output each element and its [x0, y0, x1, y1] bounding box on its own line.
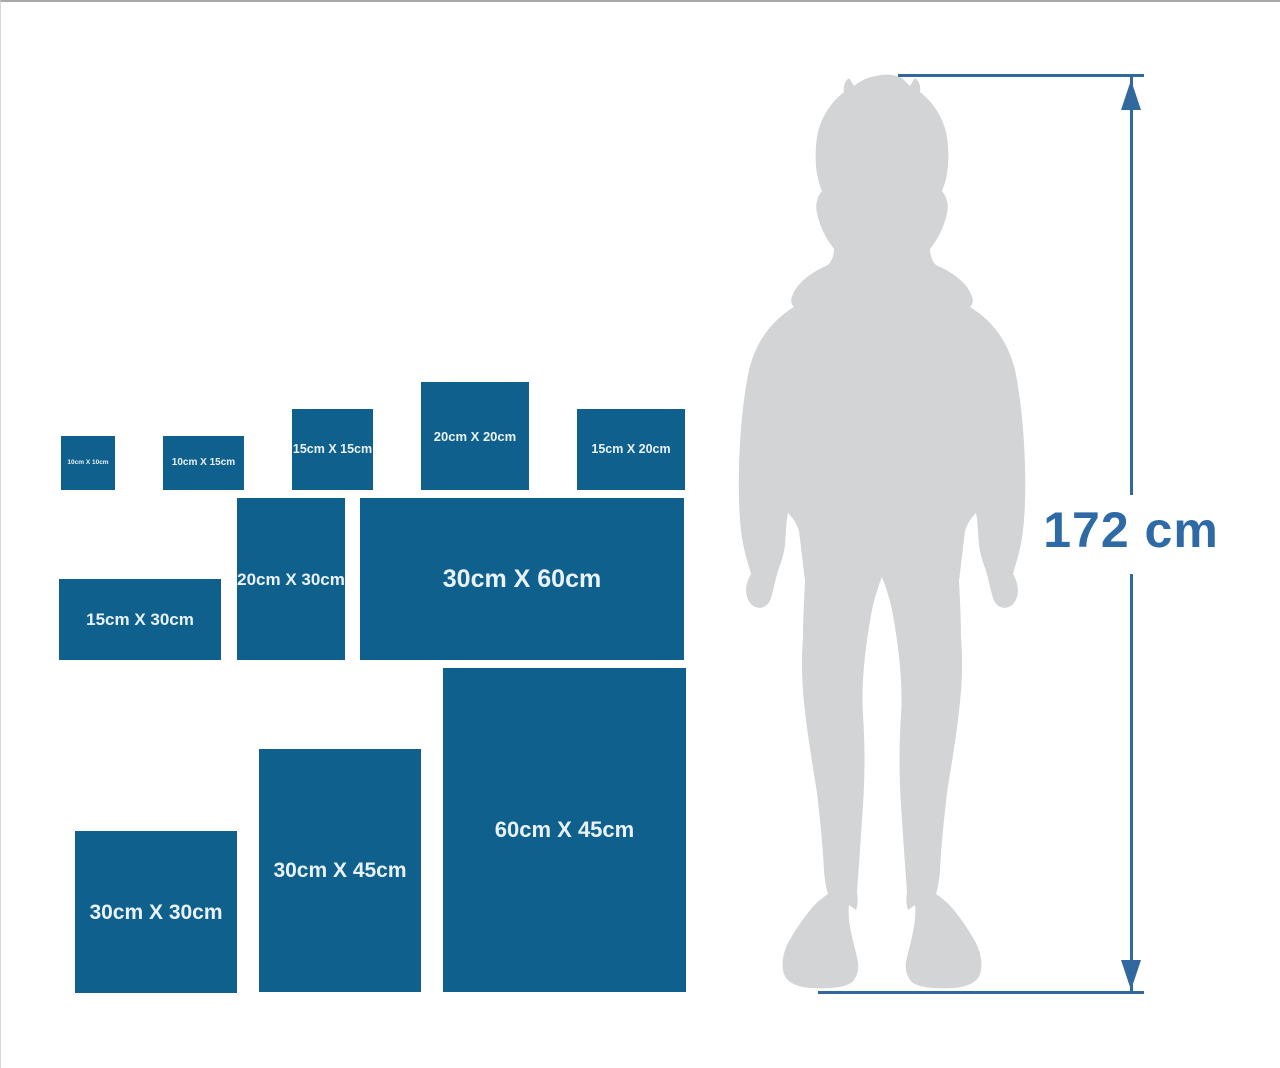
size-rect-60x45: 60cm X 45cm	[443, 668, 686, 992]
size-rect-label: 20cm X 30cm	[237, 571, 345, 588]
size-rect-10x15: 10cm X 15cm	[163, 436, 244, 490]
height-label: 172 cm	[1033, 502, 1229, 558]
person-silhouette-path	[739, 75, 1026, 989]
size-rect-label: 15cm X 30cm	[86, 611, 194, 628]
measure-arrow-up-icon	[1121, 80, 1141, 110]
measure-arrow-down-icon	[1121, 960, 1141, 990]
size-rect-label: 15cm X 20cm	[591, 443, 670, 456]
measure-line-vertical-lower	[1130, 574, 1133, 991]
size-rect-label: 30cm X 30cm	[89, 902, 222, 923]
measure-line-bottom	[818, 991, 1144, 994]
size-rect-10x10: 10cm X 10cm	[61, 436, 115, 490]
size-rect-label: 30cm X 60cm	[443, 567, 601, 592]
size-rect-30x30: 30cm X 30cm	[75, 831, 237, 993]
size-rect-label: 10cm X 15cm	[172, 458, 235, 468]
size-rect-20x30: 20cm X 30cm	[237, 498, 345, 660]
measure-line-vertical-upper	[1130, 77, 1133, 495]
size-rect-label: 15cm X 15cm	[293, 443, 372, 456]
size-rect-30x45: 30cm X 45cm	[259, 749, 421, 992]
size-rect-30x60: 30cm X 60cm	[360, 498, 684, 660]
size-rect-label: 30cm X 45cm	[273, 860, 406, 881]
size-rect-15x30: 15cm X 30cm	[59, 579, 221, 660]
person-silhouette	[738, 74, 1026, 994]
size-comparison-canvas: 10cm X 10cm10cm X 15cm15cm X 15cm20cm X …	[0, 0, 1280, 1068]
size-rect-label: 20cm X 20cm	[434, 430, 516, 443]
size-rect-15x20: 15cm X 20cm	[577, 409, 685, 490]
size-rect-20x20: 20cm X 20cm	[421, 382, 529, 490]
size-rect-label: 60cm X 45cm	[495, 819, 634, 841]
size-rect-label: 10cm X 10cm	[67, 460, 108, 467]
size-rect-15x15: 15cm X 15cm	[292, 409, 373, 490]
measure-line-top	[898, 74, 1144, 77]
